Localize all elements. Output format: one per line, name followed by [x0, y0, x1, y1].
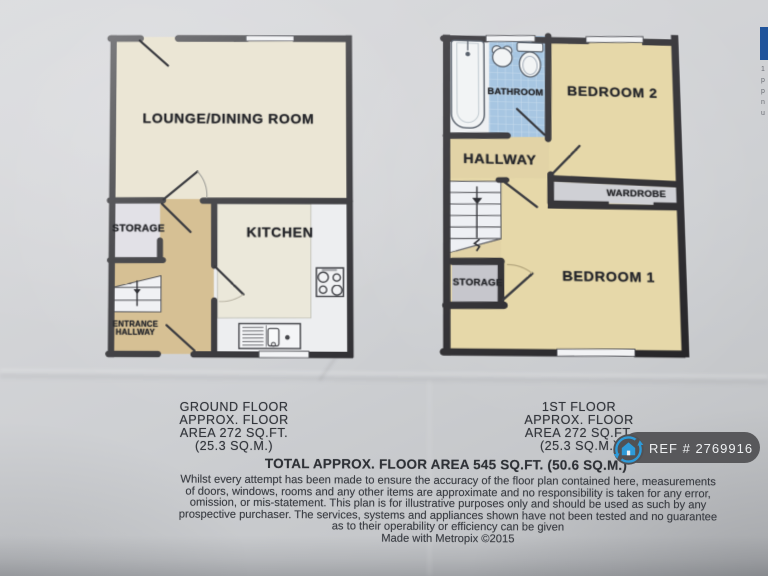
- svg-text:STORAGE: STORAGE: [453, 276, 503, 288]
- svg-text:BATHROOM: BATHROOM: [487, 87, 543, 98]
- svg-text:LOUNGE/DINING ROOM: LOUNGE/DINING ROOM: [143, 110, 315, 127]
- svg-text:WARDROBE: WARDROBE: [607, 188, 667, 200]
- svg-text:STORAGE: STORAGE: [112, 223, 165, 234]
- svg-text:BEDROOM 2: BEDROOM 2: [567, 83, 658, 101]
- svg-text:KITCHEN: KITCHEN: [246, 224, 313, 240]
- svg-text:BEDROOM 1: BEDROOM 1: [562, 268, 655, 286]
- svg-text:HALLWAY: HALLWAY: [463, 150, 537, 168]
- svg-text:HALLWAY: HALLWAY: [116, 327, 156, 336]
